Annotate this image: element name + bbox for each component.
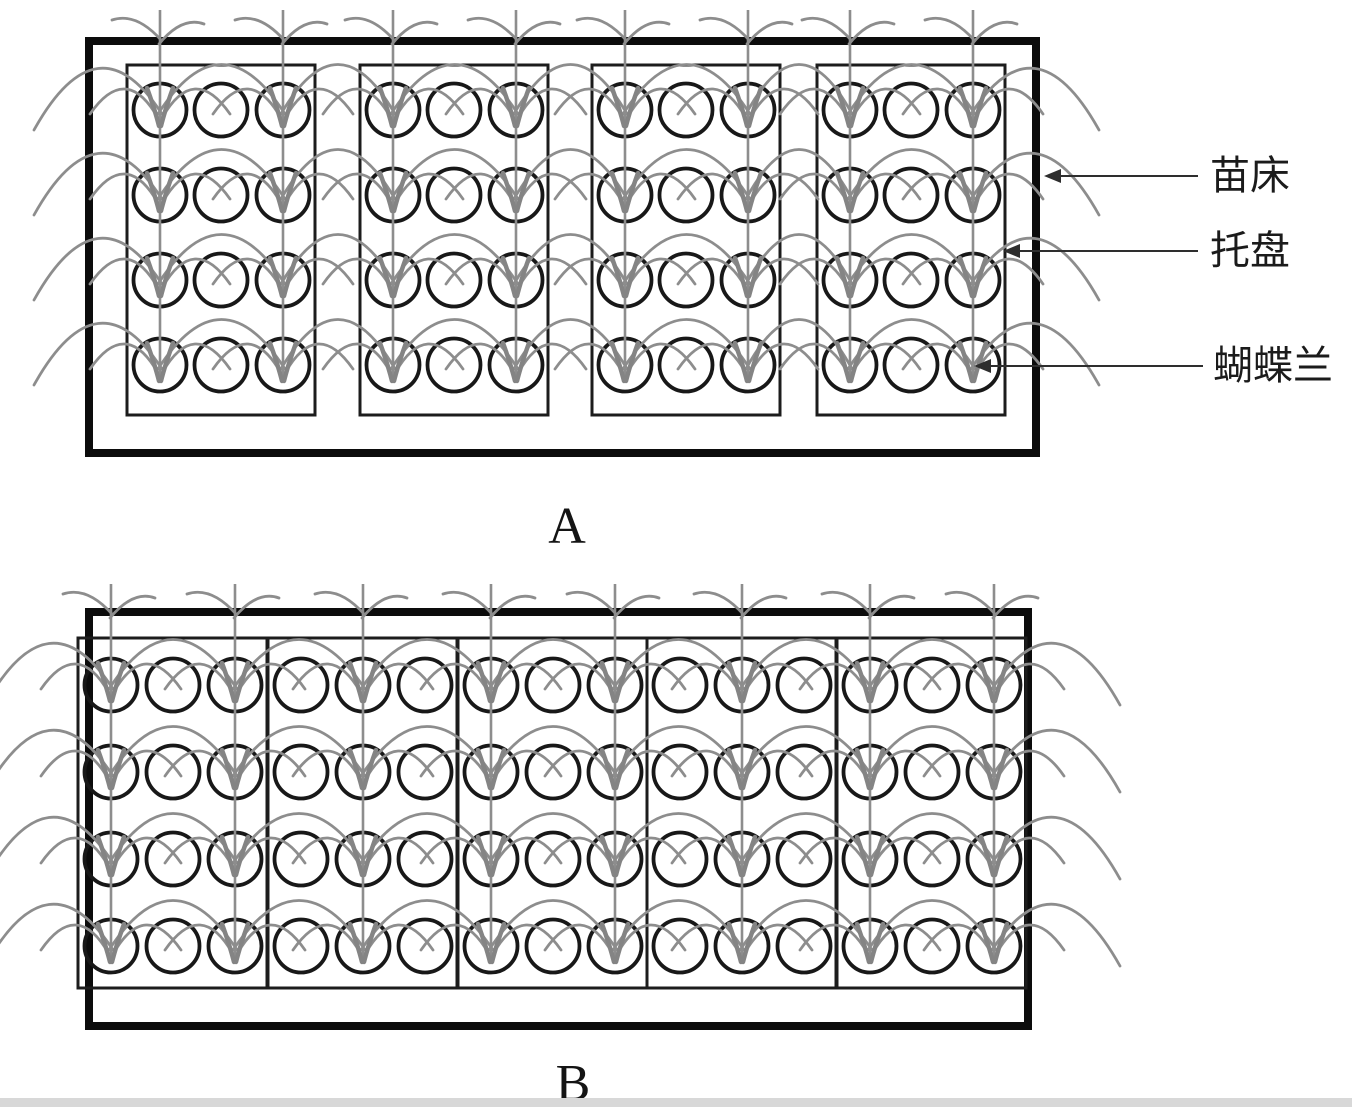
plant-leaf-arc: [514, 235, 627, 285]
plant-leaf-arc: [158, 235, 285, 285]
plant-leaf-arc: [109, 901, 237, 951]
plant-leaf-arc: [514, 65, 627, 115]
plant-leaf-arc: [848, 235, 975, 285]
plant-top-leaf: [112, 18, 161, 40]
annotation-arrowhead: [1044, 169, 1061, 183]
annotation-label-seedbed: 苗床: [1210, 154, 1290, 198]
plants-layer: [0, 584, 1120, 966]
plant-leaf-arc: [489, 901, 617, 951]
annotation-label-tray: 托盘: [1210, 229, 1290, 273]
plant-leaf-arc: [868, 727, 996, 777]
plant-leaf-arc: [391, 235, 518, 285]
plant-top-leaf: [345, 18, 394, 40]
plant-leaf-arc: [848, 150, 975, 200]
plant-leaf-arc: [514, 320, 627, 370]
plant-leaf-arc: [868, 901, 996, 951]
plant-leaf-arc: [391, 65, 518, 115]
annotation-label-phalaenopsis: 蝴蝶兰: [1213, 344, 1333, 388]
plant-leaf-arc: [391, 150, 518, 200]
plant-leaf-arc: [868, 814, 996, 864]
caption-panel-a: A: [548, 498, 586, 555]
plant-top-leaf: [468, 18, 517, 40]
plant-leaf-arc: [848, 65, 975, 115]
plant-leaf-arc: [489, 814, 617, 864]
plant-leaf-arc: [623, 320, 750, 370]
panel-a-drawing: [34, 10, 1099, 453]
bottom-edge-strip: [0, 1098, 1352, 1107]
plant-top-leaf: [235, 18, 284, 40]
plant-leaf-arc: [158, 65, 285, 115]
plant-leaf-arc: [623, 235, 750, 285]
plant-leaf-arc: [623, 150, 750, 200]
plant-leaf-arc: [848, 320, 975, 370]
plant-leaf-arc: [514, 150, 627, 200]
plant-leaf-arc: [109, 640, 237, 690]
plant-leaf-arc: [391, 320, 518, 370]
plant-leaf-arc: [281, 65, 395, 115]
plant-leaf-arc: [281, 150, 395, 200]
plant-leaf-arc: [489, 727, 617, 777]
figure-canvas: 苗床 托盘 蝴蝶兰 A B: [0, 0, 1352, 1107]
plant-leaf-arc: [489, 640, 617, 690]
plant-leaf-arc: [623, 65, 750, 115]
plant-top-leaf: [577, 18, 626, 40]
plant-top-leaf: [700, 18, 749, 40]
plant-leaf-arc: [158, 150, 285, 200]
panel-b-drawing: [0, 584, 1120, 1026]
plant-leaf-arc: [868, 640, 996, 690]
plant-leaf-arc: [281, 320, 395, 370]
plant-top-leaf: [925, 18, 974, 40]
figure-page: 苗床 托盘 蝴蝶兰 A B: [0, 0, 1352, 1107]
plant-leaf-arc: [109, 814, 237, 864]
plant-top-leaf: [802, 18, 851, 40]
plant-leaf-arc: [158, 320, 285, 370]
plant-leaf-arc: [281, 235, 395, 285]
plant-leaf-arc: [109, 727, 237, 777]
